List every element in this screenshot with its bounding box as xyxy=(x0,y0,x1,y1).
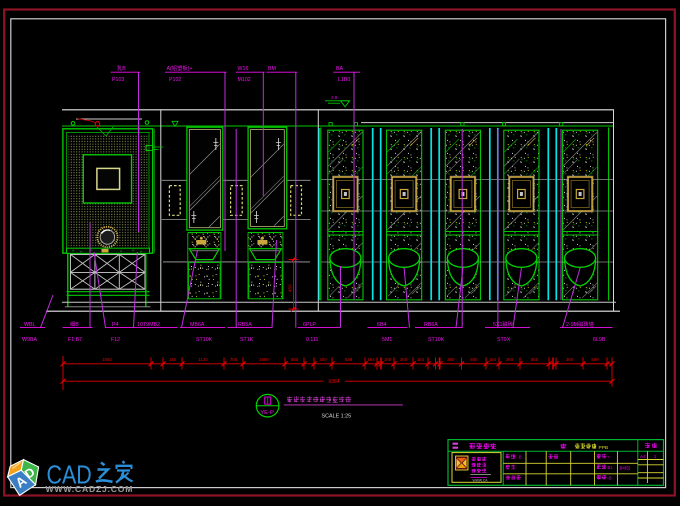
svg-text:SCALE 1:25: SCALE 1:25 xyxy=(322,414,352,420)
svg-text:B1: B1 xyxy=(608,465,614,470)
svg-text:164: 164 xyxy=(367,357,375,362)
svg-text:160: 160 xyxy=(384,357,392,362)
svg-text:2-9M磁砖墙: 2-9M磁砖墙 xyxy=(566,320,595,328)
svg-text:M102: M102 xyxy=(238,77,251,83)
svg-text:F1:B7: F1:B7 xyxy=(68,337,82,343)
svg-text:WBL: WBL xyxy=(24,322,36,328)
svg-text:P102: P102 xyxy=(169,77,181,83)
svg-text:164: 164 xyxy=(489,357,497,362)
svg-text:BM: BM xyxy=(268,66,276,72)
svg-text:6884: 6884 xyxy=(328,379,339,385)
svg-text:580: 580 xyxy=(291,357,299,362)
svg-text:A4: A4 xyxy=(640,454,646,459)
svg-text:ST9X: ST9X xyxy=(497,337,511,343)
svg-text:W16: W16 xyxy=(238,66,249,72)
svg-text:ST1K: ST1K xyxy=(240,337,254,343)
svg-text:756: 756 xyxy=(230,357,238,362)
svg-text:5M1: 5M1 xyxy=(382,337,392,343)
svg-text:乳B: 乳B xyxy=(117,64,126,72)
svg-text:10T9MB2: 10T9MB2 xyxy=(137,322,160,328)
svg-text:1580: 1580 xyxy=(259,357,269,362)
svg-text:W9BA: W9BA xyxy=(22,337,37,343)
svg-text:P4: P4 xyxy=(112,322,119,328)
svg-text:560: 560 xyxy=(470,357,478,362)
svg-text:6L9B: 6L9B xyxy=(593,337,606,343)
svg-text:P103: P103 xyxy=(112,77,124,83)
svg-text:1: 1 xyxy=(654,454,657,459)
svg-text:-B: -B xyxy=(608,476,612,481)
svg-text:ST10K: ST10K xyxy=(428,337,445,343)
svg-text:L1B0: L1B0 xyxy=(338,77,350,83)
svg-text:2.8: 2.8 xyxy=(331,95,338,100)
svg-text:F12: F12 xyxy=(111,337,120,343)
svg-text:140: 140 xyxy=(169,357,177,362)
svg-text:RB5A: RB5A xyxy=(238,322,252,328)
svg-text:0.111: 0.111 xyxy=(306,337,319,343)
svg-text:360: 360 xyxy=(506,357,514,362)
svg-text:1550: 1550 xyxy=(102,357,112,362)
svg-text:5X1磁砖: 5X1磁砖 xyxy=(493,320,514,328)
svg-text:PPB: PPB xyxy=(599,445,609,451)
svg-text:ST10K: ST10K xyxy=(196,337,213,343)
svg-text:450: 450 xyxy=(288,284,293,292)
svg-text:-B: -B xyxy=(518,455,522,460)
svg-text:YE-P: YE-P xyxy=(260,410,274,416)
svg-text:560: 560 xyxy=(531,357,539,362)
svg-text:WWW.CADZJ.COM: WWW.CADZJ.COM xyxy=(46,484,134,494)
svg-text:164: 164 xyxy=(417,357,425,362)
svg-text:1130: 1130 xyxy=(198,357,208,362)
svg-text:细B: 细B xyxy=(70,320,79,328)
svg-text:BA: BA xyxy=(336,66,344,72)
svg-text:WWW.CA: WWW.CA xyxy=(473,479,489,483)
svg-text:MB6A: MB6A xyxy=(190,322,205,328)
svg-text:560: 560 xyxy=(591,357,599,362)
svg-text:360: 360 xyxy=(566,357,574,362)
svg-text:B4(5): B4(5) xyxy=(620,465,631,470)
svg-text:6B4: 6B4 xyxy=(377,322,386,328)
svg-text:528: 528 xyxy=(345,357,353,362)
svg-text:A(铝塑板)+: A(铝塑板)+ xyxy=(167,64,193,72)
svg-text:RB6A: RB6A xyxy=(424,322,438,328)
svg-text:360: 360 xyxy=(400,357,408,362)
svg-text:200: 200 xyxy=(319,357,327,362)
svg-text:360: 360 xyxy=(447,357,455,362)
svg-text:6PLP: 6PLP xyxy=(303,322,316,328)
